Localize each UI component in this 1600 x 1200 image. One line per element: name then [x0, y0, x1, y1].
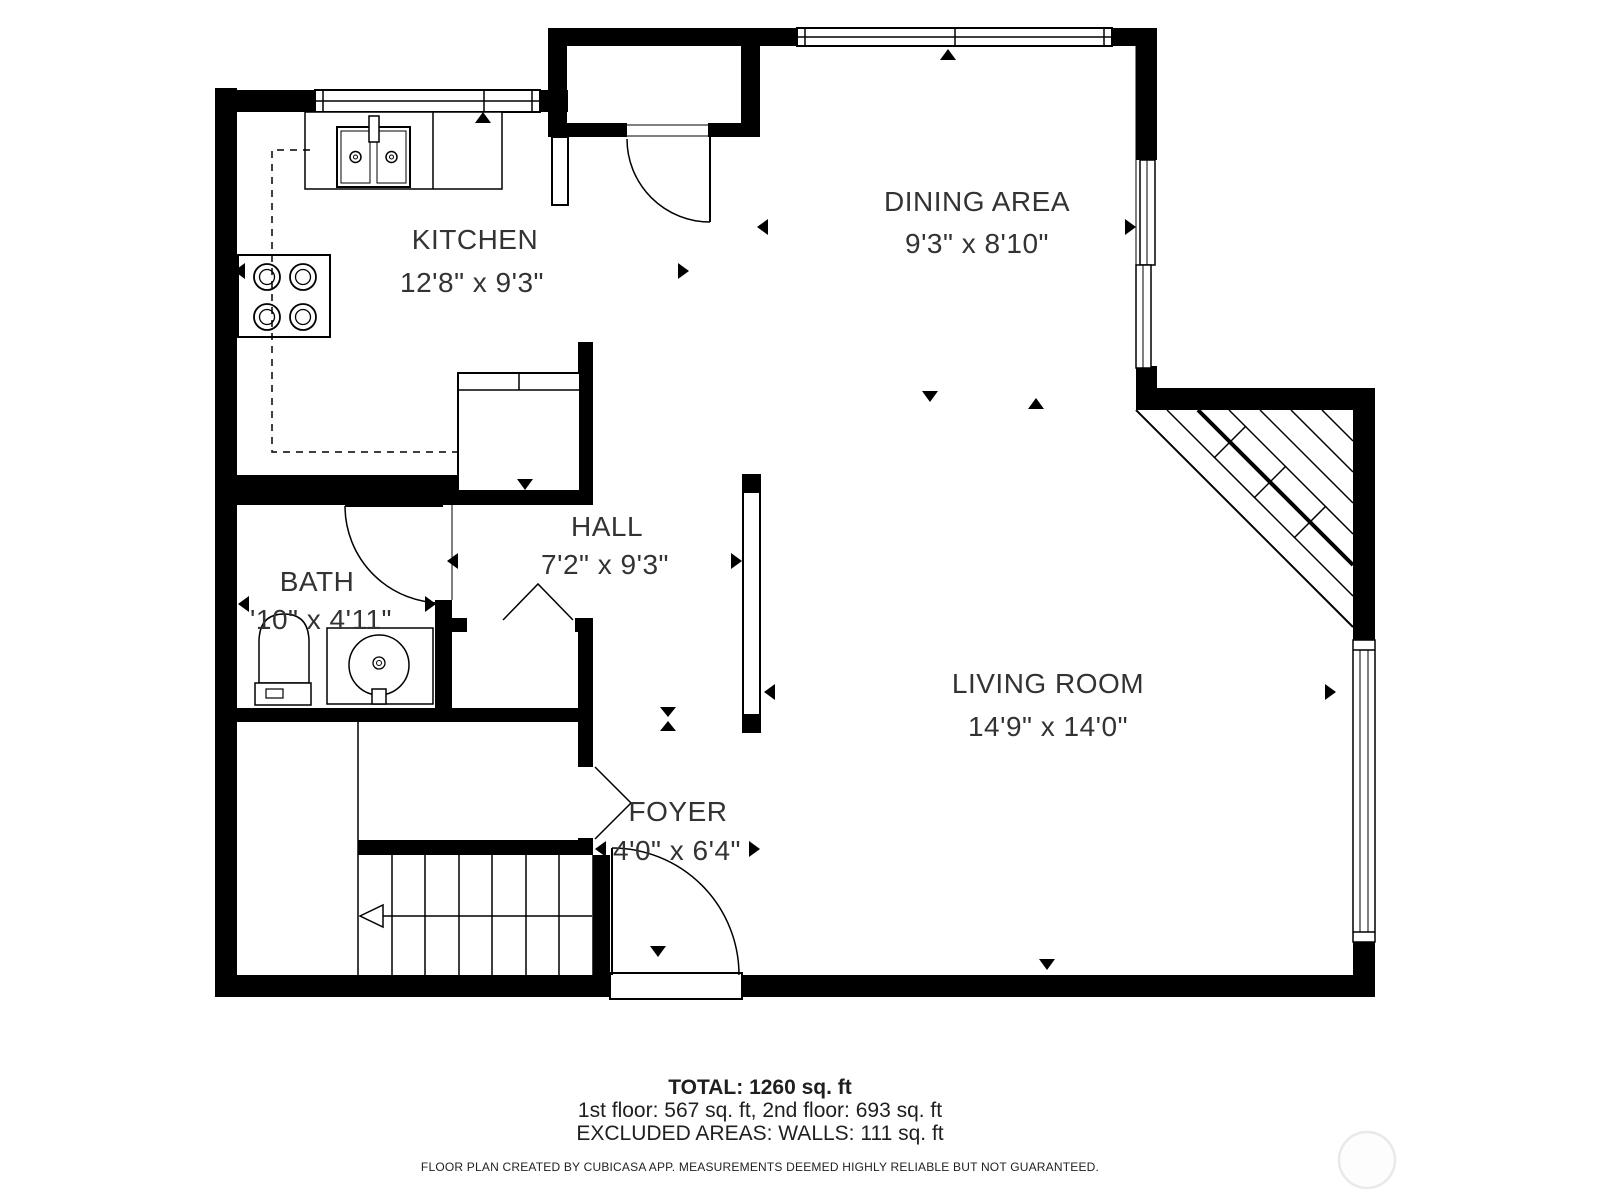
dimension-arrow-icon — [1125, 219, 1136, 235]
wall-segment — [438, 618, 467, 632]
refrigerator-icon — [458, 373, 580, 491]
door-swing-icon — [627, 139, 710, 222]
wall-segment — [215, 708, 593, 722]
dining-area-label: DINING AREA — [884, 186, 1070, 218]
dining-side-window-upper — [1140, 160, 1155, 265]
dimension-arrow-icon — [922, 391, 938, 402]
kitchen-label: KITCHEN — [412, 224, 538, 256]
total-area-text: TOTAL: 1260 sq. ft — [668, 1076, 852, 1100]
dining-area-dimensions: 9'3" x 8'10" — [905, 228, 1049, 260]
dimension-arrow-icon — [650, 946, 666, 957]
wall-segment — [1136, 28, 1157, 160]
dimension-arrow-icon — [595, 841, 606, 857]
disclaimer-text: FLOOR PLAN CREATED BY CUBICASA APP. MEAS… — [421, 1160, 1099, 1174]
wall-segment — [1353, 410, 1375, 642]
bifold-door-icon — [503, 584, 573, 620]
stairs-direction-arrow — [360, 905, 383, 927]
wall-segment — [708, 123, 760, 137]
wall-end-cap — [552, 137, 568, 205]
excluded-areas-text: EXCLUDED AREAS: WALLS: 111 sq. ft — [576, 1122, 943, 1146]
bath-label: BATH — [280, 566, 355, 598]
kitchen-window — [315, 90, 540, 112]
floor-areas-text: 1st floor: 567 sq. ft, 2nd floor: 693 sq… — [578, 1099, 942, 1123]
living-window — [1353, 640, 1375, 942]
kitchen-fixtures — [238, 112, 580, 491]
wall-segment — [741, 28, 760, 137]
wall-segment — [438, 618, 452, 722]
wall-segment — [548, 28, 760, 46]
wall-segment — [215, 975, 1375, 997]
dimension-arrow-icon — [238, 596, 249, 612]
dimension-arrow-icon — [757, 219, 768, 235]
dimension-arrow-icon — [678, 263, 689, 279]
alcove-door — [627, 125, 710, 222]
dimension-arrow-icon — [731, 553, 742, 569]
door-swing-icon — [612, 848, 739, 975]
bifold-door-icon — [595, 767, 631, 839]
bath-dimensions: '10" x 4'11" — [250, 604, 392, 636]
door-swing-icon — [345, 506, 443, 603]
dimension-arrow-icon — [940, 49, 956, 60]
wall-segment — [760, 28, 797, 46]
kitchen-dimensions: 12'8" x 9'3" — [400, 267, 544, 299]
wall-segment — [578, 618, 593, 722]
dimension-arrow-icon — [660, 721, 676, 731]
dimension-arrow-icon — [425, 596, 436, 612]
dining-side-window-lower — [1136, 265, 1151, 368]
wall-segment — [578, 722, 593, 767]
dimension-arrow-icon — [1039, 959, 1055, 970]
living-room-dimensions: 14'9" x 14'0" — [968, 711, 1128, 743]
hatched-area — [1136, 410, 1353, 627]
foyer-label: FOYER — [629, 796, 728, 828]
floor-plan-drawing — [0, 0, 1600, 1200]
dimension-arrow-icon — [749, 841, 760, 857]
wall-segment — [1136, 388, 1375, 410]
dining-window — [797, 28, 1112, 46]
watermark-circle — [1339, 1132, 1395, 1188]
foyer-dimensions: 4'0" x 6'4" — [613, 835, 741, 867]
dimension-arrow-icon — [1325, 684, 1336, 700]
living-room-label: LIVING ROOM — [952, 668, 1144, 700]
pony-wall — [743, 475, 760, 732]
dimension-arrow-icon — [660, 707, 676, 717]
wall-segment — [215, 88, 237, 997]
entry-door — [610, 848, 742, 999]
dimension-arrow-icon — [1028, 398, 1044, 409]
bath-sink-icon — [327, 628, 433, 704]
floor-plan-page: KITCHEN 12'8" x 9'3" DINING AREA 9'3" x … — [0, 0, 1600, 1200]
dimension-arrow-icon — [764, 684, 775, 700]
bath-door — [345, 505, 452, 603]
stove-icon — [238, 255, 330, 337]
wall-segment — [560, 123, 627, 137]
wall-segment — [593, 855, 610, 977]
door-threshold — [610, 973, 742, 999]
kitchen-sink-icon — [337, 116, 410, 187]
hall-label: HALL — [571, 511, 643, 543]
wall-segment — [358, 840, 593, 855]
wall-segment — [215, 90, 315, 112]
hall-dimensions: 7'2" x 9'3" — [541, 549, 669, 581]
